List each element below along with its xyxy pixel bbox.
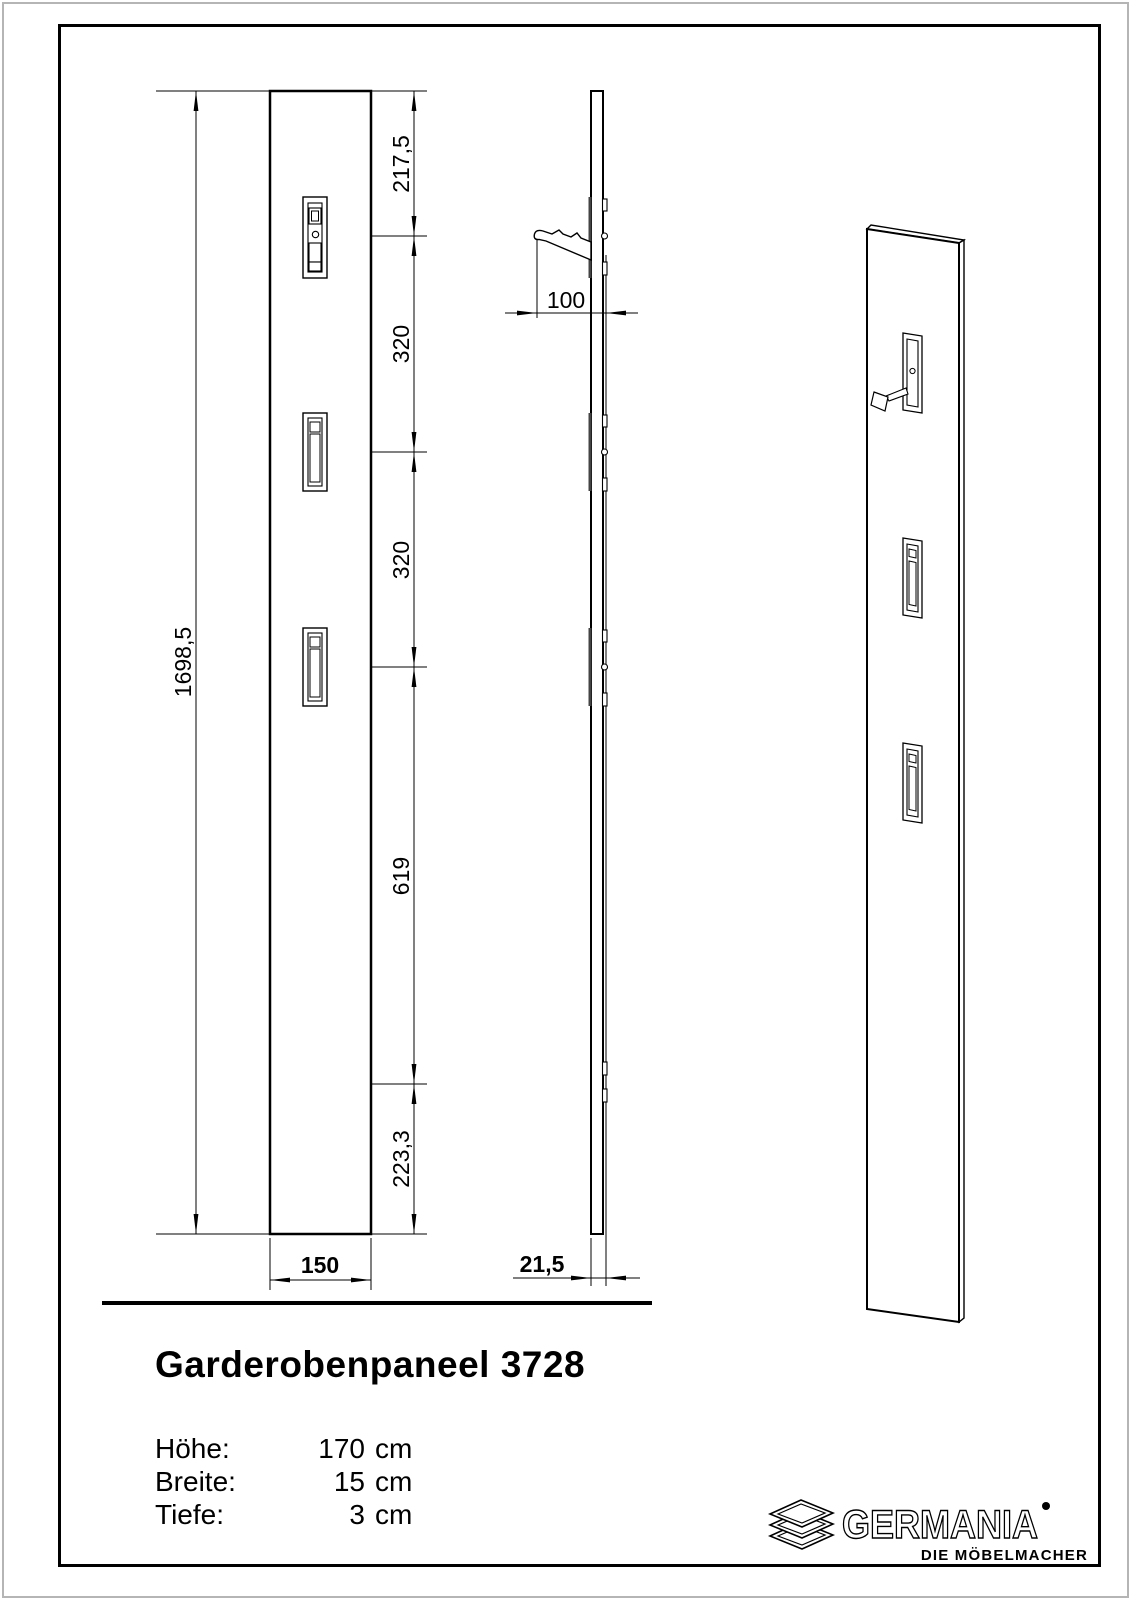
front-hook-slot-3 bbox=[303, 628, 327, 706]
side-panel-outline bbox=[591, 91, 603, 1234]
brand-tagline: DIE MÖBELMACHER bbox=[921, 1547, 1088, 1564]
dim-label-hook3-to-bracket: 619 bbox=[388, 857, 414, 895]
dim-label-hook1-to-hook2: 320 bbox=[388, 325, 414, 363]
perspective-hook-2 bbox=[903, 538, 922, 618]
dim-label-bracket-to-bottom: 223,3 bbox=[388, 1130, 414, 1188]
side-extended-hook-arm bbox=[534, 230, 591, 260]
dim-label-hook-projection: 100 bbox=[547, 287, 585, 313]
perspective-view bbox=[867, 225, 964, 1322]
front-view bbox=[156, 91, 427, 1290]
dim-label-top-to-hook1: 217,5 bbox=[388, 135, 414, 193]
registered-mark-dot bbox=[1042, 1502, 1050, 1510]
brand-wordmark: GERMANIA bbox=[842, 1503, 1038, 1547]
front-hook-slot-2 bbox=[303, 413, 327, 491]
front-hook-slot-1 bbox=[303, 197, 327, 278]
technical-drawing-canvas: 1698,5 217,5 320 320 619 223,3 150 100 2… bbox=[0, 0, 1131, 1600]
brand-logo: GERMANIA DIE MÖBELMACHER bbox=[770, 1500, 1088, 1564]
stacked-panels-icon bbox=[770, 1500, 833, 1549]
dimension-labels: 1698,5 217,5 320 320 619 223,3 150 100 2… bbox=[170, 135, 585, 1278]
side-view bbox=[505, 91, 640, 1286]
dim-label-width: 150 bbox=[301, 1252, 339, 1278]
dim-label-hook2-to-hook3: 320 bbox=[388, 541, 414, 579]
dim-label-overall-height: 1698,5 bbox=[170, 627, 196, 697]
dim-label-panel-depth: 21,5 bbox=[520, 1251, 565, 1277]
technical-drawing-page: 1698,5 217,5 320 320 619 223,3 150 100 2… bbox=[0, 0, 1131, 1600]
side-slot-plates bbox=[589, 197, 592, 706]
perspective-hook-3 bbox=[903, 743, 922, 823]
